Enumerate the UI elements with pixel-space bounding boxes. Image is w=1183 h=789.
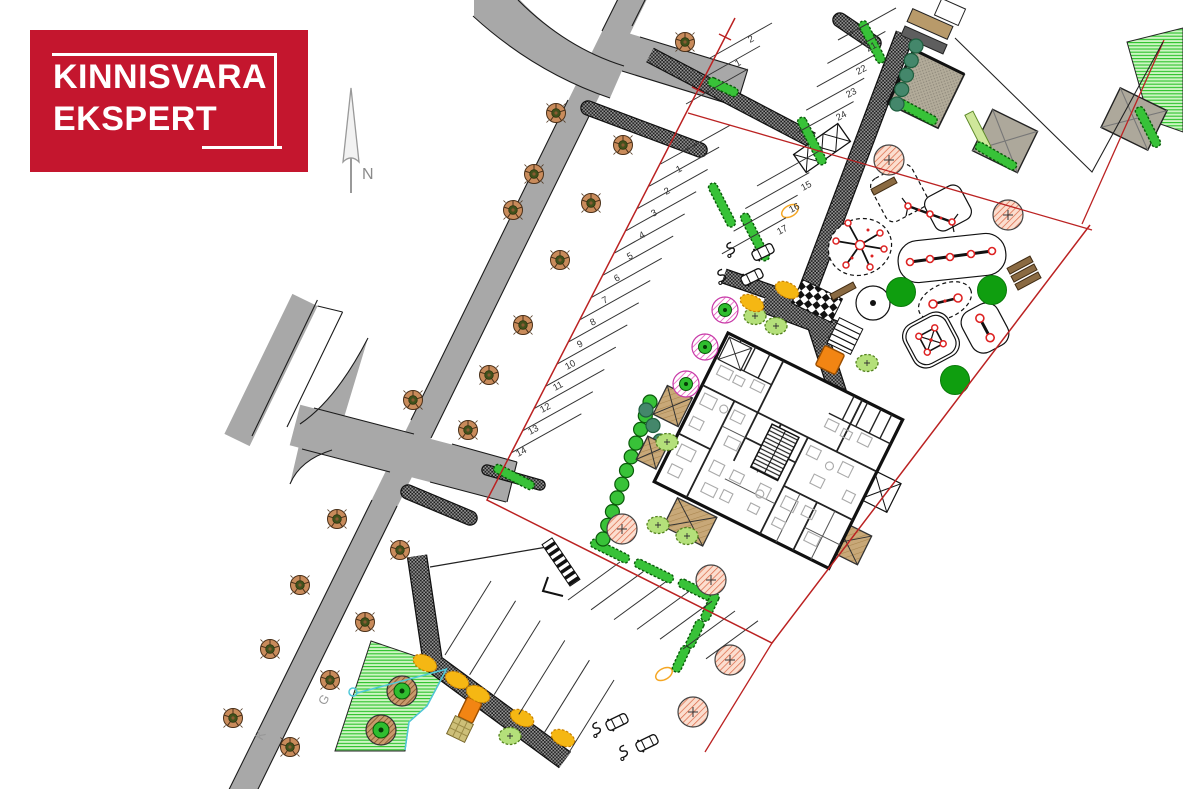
stall-line	[580, 281, 650, 320]
parking-number: 10	[563, 358, 578, 373]
street-tree	[514, 316, 533, 335]
shrub	[656, 434, 678, 451]
shrub	[499, 728, 521, 745]
street-tree	[404, 391, 423, 410]
deciduous-tree	[607, 514, 637, 544]
street-tree	[582, 194, 601, 213]
deciduous-tree	[874, 145, 904, 175]
brand-name-line2: EKSPERT	[53, 102, 217, 136]
deciduous-tree	[696, 565, 726, 595]
street-tree	[291, 576, 310, 595]
street-tree	[356, 613, 375, 632]
logo-frame-right	[274, 53, 277, 149]
parking-number: 2	[662, 185, 672, 197]
site-plan-page: 12345678910111213142121222324151617GK KI…	[0, 0, 1183, 789]
shrub	[765, 318, 787, 335]
stall-line	[603, 236, 673, 275]
street-tree	[676, 33, 695, 52]
stall-line	[568, 680, 614, 754]
bench	[830, 282, 856, 300]
street-tree	[614, 136, 633, 155]
hedge-shrub	[646, 419, 660, 433]
hedge-shrub	[904, 54, 918, 68]
street-tree	[391, 541, 410, 560]
hedge-shrub	[890, 97, 904, 111]
entrance-gate	[542, 538, 580, 596]
brand-name-line1: KINNISVARA	[53, 60, 267, 94]
north-label: N	[362, 166, 374, 184]
stall-line	[543, 660, 589, 734]
street-tree	[459, 421, 478, 440]
stall-line	[745, 173, 809, 209]
ornamental-tree	[692, 334, 718, 360]
parking-number: 5	[625, 250, 635, 262]
parking-number: 15	[799, 179, 814, 194]
marker-ellipse	[653, 665, 674, 684]
street-tree	[224, 709, 243, 728]
street-tree	[547, 104, 566, 123]
street-tree	[281, 738, 300, 757]
ornamental-tree	[712, 297, 738, 323]
parking-number: 2	[746, 33, 756, 45]
hedge-shrub	[909, 39, 923, 53]
parking-number: 13	[526, 423, 541, 438]
hedge-bar	[671, 644, 691, 673]
car-icon	[634, 732, 660, 754]
deciduous-tree	[993, 200, 1023, 230]
ornamental-tree	[673, 371, 699, 397]
street-tree	[504, 201, 523, 220]
parking-number: 7	[600, 294, 610, 306]
parking-number: 9	[575, 338, 585, 350]
stall-line	[592, 258, 662, 297]
parking-number: 14	[514, 445, 529, 460]
shrub	[647, 517, 669, 534]
scooter-icon	[723, 242, 737, 258]
scooter-icon	[616, 745, 630, 761]
shrub	[676, 528, 698, 545]
street-tree	[321, 671, 340, 690]
car-icon	[604, 711, 630, 733]
hedge-shrub	[639, 403, 653, 417]
north-arrow-glyph	[322, 78, 402, 203]
parking-number: 6	[612, 272, 622, 284]
evergreen-tree	[887, 278, 916, 307]
street-tree	[551, 251, 570, 270]
hedge-shrub	[624, 450, 638, 464]
hedge-shrub	[895, 83, 909, 97]
parking-number: 16	[787, 201, 802, 216]
parking-number: 1	[674, 163, 684, 175]
logo-frame-bottom	[202, 146, 282, 149]
hedge-shrub	[620, 464, 634, 478]
street-tree	[525, 165, 544, 184]
scooter-icon	[589, 722, 603, 738]
curb-line	[430, 547, 547, 567]
street-letter: G	[315, 692, 332, 707]
stall-line	[615, 214, 685, 253]
stall-line	[710, 23, 772, 58]
hedge-shrub	[629, 436, 643, 450]
north-arrow: N	[322, 78, 402, 203]
lawn-tree	[366, 715, 396, 745]
hedge-bar	[633, 558, 675, 585]
stall-line	[638, 169, 708, 208]
play-area	[921, 182, 974, 234]
stall-line	[649, 147, 719, 186]
hedge-shrub	[610, 491, 624, 505]
brand-logo: KINNISVARA EKSPERT	[30, 30, 308, 172]
stall-line	[494, 621, 540, 695]
stall-line	[626, 192, 696, 231]
parking-number: 17	[775, 223, 790, 238]
hedge-bar	[685, 619, 706, 650]
deciduous-tree	[678, 697, 708, 727]
street-tree	[261, 640, 280, 659]
evergreen-tree	[978, 276, 1007, 305]
street-tree	[328, 510, 347, 529]
street-tree	[480, 366, 499, 385]
shrub	[856, 355, 878, 372]
stall-line	[470, 601, 516, 675]
parking-number: 8	[588, 316, 598, 328]
parking-number: 12	[538, 401, 553, 416]
hedge-shrub	[615, 477, 629, 491]
stall-line	[519, 640, 565, 714]
stall-line	[445, 581, 491, 655]
hedge-bar	[707, 182, 737, 229]
logo-frame-top	[52, 53, 277, 56]
hedge-shrub	[900, 68, 914, 82]
